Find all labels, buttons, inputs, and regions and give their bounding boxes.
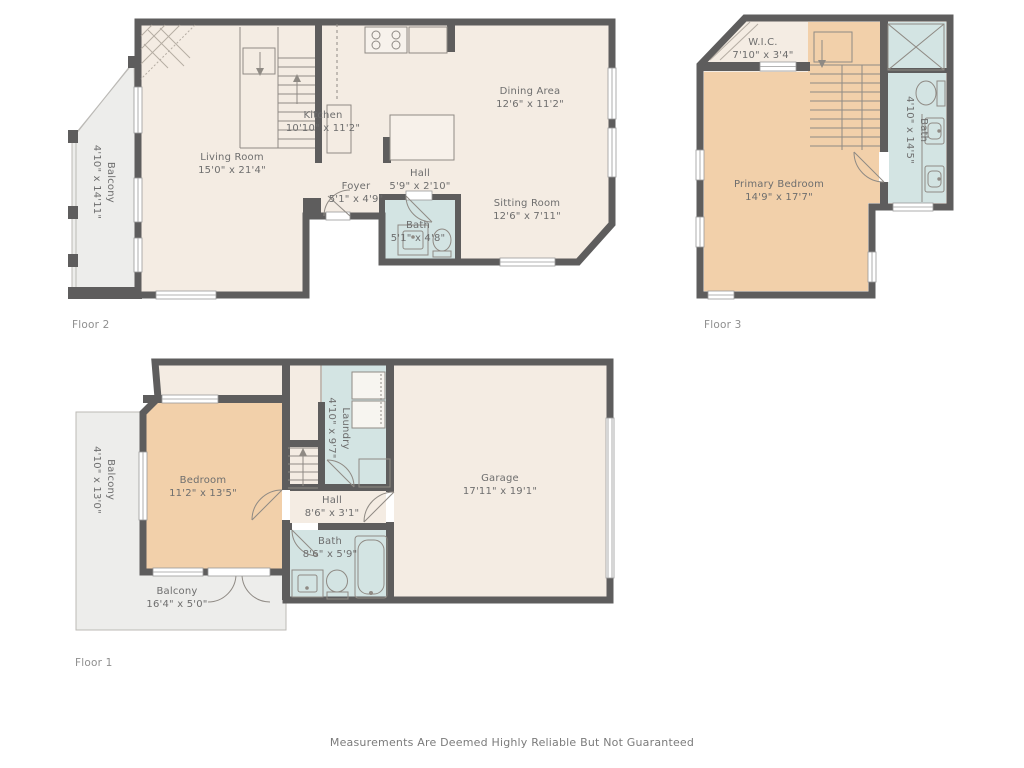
room-label-bath: Bath 4'10" x 14'5"	[902, 96, 930, 164]
room-name: Kitchen	[286, 109, 360, 122]
room-name: Primary Bedroom	[734, 178, 824, 191]
room-label-sitting-room: Sitting Room 12'6" x 7'11"	[493, 197, 561, 223]
room-name: Laundry	[338, 397, 352, 458]
room-label-foyer: Foyer 5'1" x 4'9"	[329, 180, 384, 206]
room-label-bath: Bath 8'6" x 5'9"	[303, 535, 358, 561]
room-dims: 11'2" x 13'5"	[169, 487, 237, 500]
room-dims: 10'10" x 11'2"	[286, 122, 360, 135]
room-label-dining-area: Dining Area 12'6" x 11'2"	[496, 85, 564, 111]
floorplan-canvas: Balcony 4'10" x 14'11" Living Room 15'0"…	[0, 0, 1024, 768]
room-label-garage: Garage 17'11" x 19'1"	[463, 472, 537, 498]
room-dims: 5'1" x 4'8"	[391, 232, 446, 245]
room-name: W.I.C.	[732, 36, 793, 49]
room-name: Garage	[463, 472, 537, 485]
room-label-balcony-bottom: Balcony 16'4" x 5'0"	[146, 585, 207, 611]
room-label-living-room: Living Room 15'0" x 21'4"	[198, 151, 266, 177]
room-name: Foyer	[329, 180, 384, 193]
room-name: Bath	[303, 535, 358, 548]
garage-door	[606, 418, 614, 578]
floor-1-caption: Floor 1	[75, 657, 113, 669]
room-name: Balcony	[103, 446, 117, 514]
room-dims: 17'11" x 19'1"	[463, 485, 537, 498]
room-dims: 4'10" x 14'5"	[902, 96, 916, 164]
room-dims: 15'0" x 21'4"	[198, 164, 266, 177]
room-name: Balcony	[146, 585, 207, 598]
room-dims: 5'1" x 4'9"	[329, 193, 384, 206]
room-dims: 5'9" x 2'10"	[389, 180, 450, 193]
room-label-hall: Hall 5'9" x 2'10"	[389, 167, 450, 193]
room-label-kitchen: Kitchen 10'10" x 11'2"	[286, 109, 360, 135]
room-label-hall: Hall 8'6" x 3'1"	[305, 494, 360, 520]
room-dims: 4'10" x 14'11"	[89, 145, 103, 219]
room-label-balcony-left: Balcony 4'10" x 13'0"	[89, 446, 117, 514]
room-label-bath: Bath 5'1" x 4'8"	[391, 219, 446, 245]
floor-plan-floor-3: W.I.C. 7'10" x 3'4" Primary Bedroom 14'9…	[690, 10, 960, 340]
room-dims: 12'6" x 11'2"	[496, 98, 564, 111]
disclaimer-text: Measurements Are Deemed Highly Reliable …	[0, 736, 1024, 749]
wic-door	[760, 62, 796, 71]
room-name: Bath	[391, 219, 446, 232]
room-name: Hall	[389, 167, 450, 180]
dining-table-icon	[390, 115, 454, 160]
room-label-bedroom: Bedroom 11'2" x 13'5"	[169, 474, 237, 500]
room-name: Balcony	[103, 145, 117, 219]
room-label-wic: W.I.C. 7'10" x 3'4"	[732, 36, 793, 62]
floor-plan-floor-2: Balcony 4'10" x 14'11" Living Room 15'0"…	[60, 10, 620, 340]
room-label-primary-bedroom: Primary Bedroom 14'9" x 17'7"	[734, 178, 824, 204]
room-dims: 8'6" x 3'1"	[305, 507, 360, 520]
room-name: Bedroom	[169, 474, 237, 487]
room-name: Hall	[305, 494, 360, 507]
floor-plan-floor-1: Balcony 4'10" x 13'0" Bedroom 11'2" x 13…	[60, 352, 620, 682]
room-dims: 14'9" x 17'7"	[734, 191, 824, 204]
room-name: Living Room	[198, 151, 266, 164]
room-label-balcony: Balcony 4'10" x 14'11"	[89, 145, 117, 219]
room-dims: 4'10" x 13'0"	[89, 446, 103, 514]
room-dims: 12'6" x 7'11"	[493, 210, 561, 223]
room-dims: 7'10" x 3'4"	[732, 49, 793, 62]
stove-icon	[365, 27, 407, 53]
floor-3-caption: Floor 3	[704, 319, 742, 331]
floor-2-caption: Floor 2	[72, 319, 110, 331]
room-label-laundry: Laundry 4'10" x 9'7"	[324, 397, 352, 458]
room-name: Sitting Room	[493, 197, 561, 210]
room-dims: 4'10" x 9'7"	[324, 397, 338, 458]
room-name: Dining Area	[496, 85, 564, 98]
room-dims: 16'4" x 5'0"	[146, 598, 207, 611]
floor-2-drawing	[60, 10, 620, 310]
room-name: Bath	[916, 96, 930, 164]
room-dims: 8'6" x 5'9"	[303, 548, 358, 561]
